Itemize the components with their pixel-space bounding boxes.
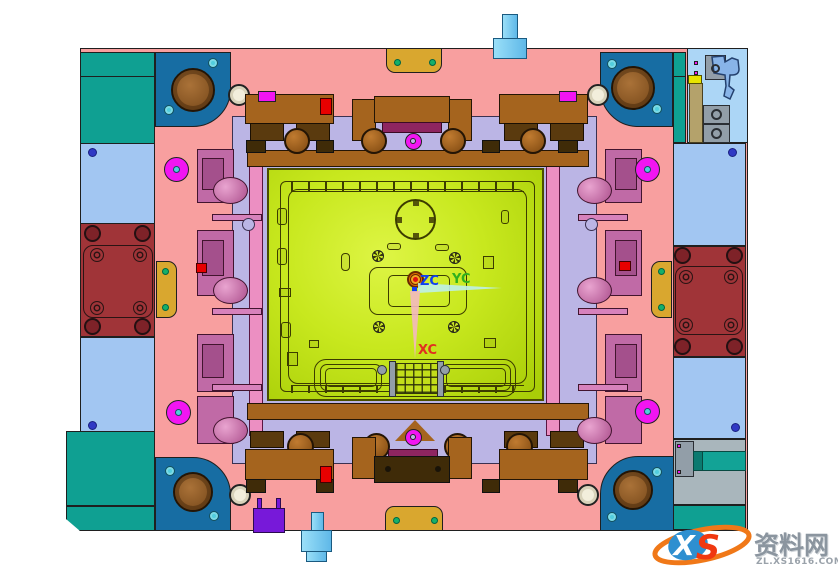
watermark-logo: X S (650, 518, 754, 572)
left-lock-ring-tr (133, 248, 147, 262)
right-lifter-cylinder-1 (577, 177, 612, 204)
watermark-logo-s: S (696, 528, 721, 568)
left-lifter-cylinder-1 (213, 177, 248, 204)
round-insert (395, 199, 436, 240)
bottom-carriage-left-foot1 (250, 431, 284, 448)
center-bushing-bottom (405, 429, 422, 446)
round-slider-tl-pin (173, 166, 180, 173)
round-slider-top-right (635, 157, 660, 182)
left-rod-2 (212, 308, 262, 315)
guide-bushing-top-right (611, 66, 655, 110)
corner-screw-tl-1 (208, 58, 218, 68)
bottom-foot-block1 (246, 479, 266, 493)
left-lock-ring-tl (90, 248, 104, 262)
top-tab-screw-left (394, 59, 401, 66)
watermark-logo-x: X (671, 529, 696, 562)
right-teal-strip1 (673, 52, 686, 77)
center-bushing-top (405, 133, 422, 150)
left-lock-hole-tl (84, 225, 101, 242)
water-fitting-tip-bottom (306, 551, 327, 562)
corner-screw-tr-1 (607, 59, 617, 69)
slider-rail-bottom (247, 403, 589, 420)
slide-shaft-top-4 (520, 128, 546, 154)
center-screw-1 (385, 466, 391, 472)
bottom-slot-right-inner (446, 368, 506, 387)
latch-bore-ring2 (711, 128, 722, 139)
right-rail-blue-upper (673, 143, 746, 246)
water-fitting-top (493, 38, 527, 59)
wcs-y-label: YC (452, 273, 471, 286)
core-slot-8 (309, 340, 319, 348)
latch-pin-dot2 (694, 71, 698, 75)
wear-plate-left (249, 150, 263, 436)
side-tab-left-screw2 (162, 304, 169, 311)
wcs-x-label: XC (418, 344, 437, 357)
latch-yellow-pad (688, 75, 702, 84)
round-slider-bottom-right (635, 399, 660, 424)
grill-insert (395, 363, 438, 394)
side-tab-right-screw2 (658, 304, 665, 311)
watermark: X S 资料网 ZL.XS1616.COM (650, 516, 838, 576)
latch-hook (703, 53, 747, 105)
latch-tan-bar (689, 83, 703, 143)
corner-screw-br-1 (652, 467, 662, 477)
top-gate-insert (382, 122, 442, 133)
right-lifter-block-3-inner (615, 344, 637, 378)
right-rod-2 (578, 308, 628, 315)
left-lock-ring-bl (90, 301, 104, 315)
watermark-site-url: ZL.XS1616.COM (756, 557, 838, 567)
round-insert-key-e (429, 217, 434, 223)
top-tab-screw-right (429, 59, 436, 66)
water-fitting-bottom (301, 530, 332, 552)
round-insert-key-w (397, 217, 402, 223)
round-slider-top-left (164, 157, 189, 182)
return-pin-top-right (587, 84, 609, 106)
right-lock-ring-tl (679, 270, 693, 284)
guide-bushing-top-left (171, 68, 215, 112)
latch-block-bore (711, 64, 720, 73)
right-rod-3 (578, 384, 628, 391)
corner-screw-gear-tl (372, 250, 384, 262)
corner-screw-gear-tr (449, 252, 461, 264)
round-insert-key-n (413, 201, 419, 206)
right-lock-ring-tr (724, 270, 738, 284)
bottom-carriage-center-wing-right (448, 437, 472, 479)
right-upper-pin (728, 148, 737, 157)
core-slot-1 (277, 208, 287, 225)
right-lock-ring-bl (679, 318, 693, 332)
core-pill-right (435, 244, 449, 251)
right-lower-pin (731, 423, 740, 432)
corner-screw-br-2 (607, 512, 617, 522)
left-upper-pin (88, 148, 97, 157)
left-lower-pin (88, 421, 97, 430)
left-rail-teal-top2 (80, 76, 155, 144)
left-lock-hole-tr (134, 225, 151, 242)
corner-screw-tl-2 (164, 105, 174, 115)
red-marker-top (320, 98, 332, 115)
bottom-foot-block3 (482, 479, 500, 493)
right-guide-pin (585, 218, 598, 231)
bottom-carriage-center (374, 456, 450, 483)
right-lock-ring-br (724, 318, 738, 332)
side-tab-right-screw1 (658, 268, 665, 275)
center-bushing-top-bore (410, 138, 416, 144)
red-marker-bottom (320, 466, 332, 483)
latch-hook-path (712, 56, 739, 99)
return-pin-bottom-right (577, 484, 599, 506)
guide-bushing-bottom-right (613, 470, 653, 510)
left-rod-1 (212, 214, 262, 221)
core-cavity-plate: ZC YC XC (267, 168, 544, 401)
round-slider-tr-pin (644, 166, 651, 173)
core-slot-7 (484, 338, 496, 348)
core-slot-6 (483, 256, 494, 269)
left-lock-hole-br (134, 318, 151, 335)
cylinder-pin2 (677, 470, 681, 474)
top-foot-block2 (316, 140, 334, 153)
corner-screw-bl-1 (165, 466, 175, 476)
left-lifter-cylinder-3 (213, 417, 248, 444)
left-lifter-block-3-inner (202, 344, 224, 378)
sprue-bushing-core (413, 277, 418, 282)
top-carriage-left-foot1 (250, 123, 284, 141)
bottom-slot-left-inner (325, 368, 377, 387)
latch-pin-dot1 (694, 61, 698, 65)
slide-shaft-top-3 (440, 128, 466, 154)
slide-shaft-top-2 (361, 128, 387, 154)
grill-dowel-right (440, 365, 450, 375)
top-foot-block1 (246, 140, 266, 153)
right-lifter-cylinder-3 (577, 417, 612, 444)
wcs-z-label: ZC (420, 275, 439, 288)
bottom-tab-screw-right (431, 517, 438, 524)
latch-bore-ring1 (711, 109, 722, 120)
red-marker-left (196, 263, 207, 273)
bottom-tab-screw-left (393, 517, 400, 524)
round-slider-bl-pin (175, 409, 182, 416)
right-lifter-block-1-inner (615, 158, 637, 190)
bottom-foot-block4 (558, 479, 578, 493)
right-lock-hole-bl (674, 338, 691, 355)
purple-clamp-body (253, 508, 285, 533)
corner-screw-gear-br (448, 321, 460, 333)
left-rod-3 (212, 384, 262, 391)
center-screw-2 (435, 466, 441, 472)
cad-screenshot: { "viewport": { "description_label": "",… (0, 0, 838, 579)
magenta-gib-top-right (559, 91, 577, 102)
right-lock-hole-br (726, 338, 743, 355)
wear-plate-right (546, 150, 560, 436)
core-slot-3 (279, 288, 291, 297)
right-teal-strip2 (673, 76, 686, 143)
corner-screw-bl-2 (209, 511, 219, 521)
corner-screw-tr-2 (652, 104, 662, 114)
top-carriage-center (374, 96, 450, 123)
side-tab-left-screw1 (162, 268, 169, 275)
left-rail-blue-lower (80, 337, 155, 432)
core-slot-9 (501, 210, 509, 224)
center-bushing-bottom-bore (410, 434, 416, 440)
left-rail-teal-bottom (66, 431, 155, 531)
round-slider-br-pin (644, 408, 651, 415)
top-foot-block4 (558, 140, 578, 153)
right-lock-hole-tr (726, 247, 743, 264)
core-slot-5 (341, 253, 350, 271)
bottom-carriage-right (499, 449, 588, 480)
top-carriage-right-foot2 (550, 123, 584, 141)
cylinder-pin1 (677, 444, 681, 448)
corner-screw-gear-bl (373, 321, 385, 333)
round-insert-key-s (413, 233, 419, 238)
left-teal-seam (67, 505, 154, 507)
left-lifter-cylinder-2 (213, 277, 248, 304)
red-marker-right (619, 261, 631, 271)
core-pill-left (387, 243, 401, 250)
left-guide-pin (242, 218, 255, 231)
left-rail-teal-top1 (80, 52, 155, 77)
bottom-carriage-center-wing-left (352, 437, 376, 479)
top-foot-block3 (482, 140, 500, 153)
left-lock-hole-bl (84, 318, 101, 335)
hydraulic-cylinder-cap (693, 451, 703, 471)
core-slot-10 (287, 352, 298, 366)
right-lifter-cylinder-2 (577, 277, 612, 304)
core-vent-row-top (291, 182, 524, 192)
grill-dowel-left (377, 365, 387, 375)
right-lock-hole-tl (674, 247, 691, 264)
core-slot-2 (277, 248, 287, 265)
magenta-gib-top-left (258, 91, 276, 102)
guide-bushing-bottom-left (173, 472, 213, 512)
slide-shaft-top-1 (284, 128, 310, 154)
left-lock-ring-br (133, 301, 147, 315)
round-slider-bottom-left (166, 400, 191, 425)
core-slot-4 (281, 322, 291, 338)
